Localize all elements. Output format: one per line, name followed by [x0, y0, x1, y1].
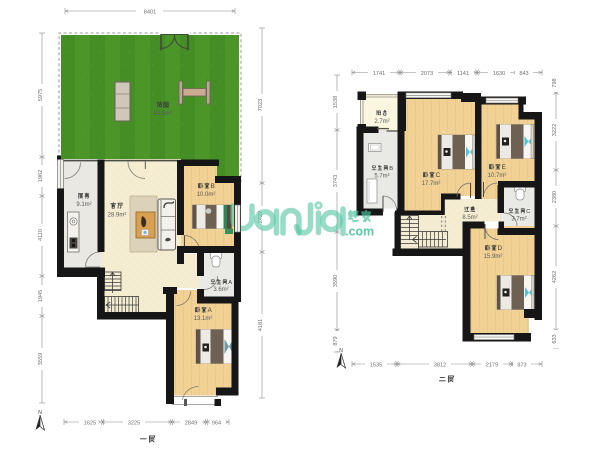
- svg-text:C: C: [526, 209, 530, 215]
- svg-text:3743: 3743: [333, 175, 339, 187]
- svg-text:9.1m²: 9.1m²: [76, 202, 91, 208]
- svg-text:28.9m²: 28.9m²: [108, 213, 127, 219]
- svg-text:2380: 2380: [552, 191, 558, 203]
- svg-text:2.7m²: 2.7m²: [374, 119, 389, 125]
- svg-text:3590: 3590: [333, 275, 339, 287]
- svg-text:3.7m²: 3.7m²: [511, 217, 526, 223]
- svg-text:879: 879: [333, 336, 339, 345]
- svg-text:8.5m²: 8.5m²: [462, 215, 477, 221]
- svg-text:E: E: [502, 164, 506, 171]
- svg-text:5.7m²: 5.7m²: [374, 174, 389, 180]
- svg-text:633: 633: [552, 334, 558, 343]
- svg-text:17.7m²: 17.7m²: [422, 181, 441, 187]
- svg-text:7023: 7023: [258, 99, 264, 111]
- svg-text:10.7m²: 10.7m²: [488, 173, 507, 179]
- svg-text:B: B: [389, 166, 393, 172]
- svg-text:13.1m²: 13.1m²: [194, 316, 213, 322]
- svg-text:4110: 4110: [38, 229, 44, 241]
- svg-text:C: C: [436, 172, 441, 179]
- svg-text:1741: 1741: [373, 71, 385, 77]
- svg-text:5975: 5975: [38, 89, 44, 101]
- svg-text:1630: 1630: [493, 71, 505, 77]
- svg-text:3.6m²: 3.6m²: [213, 287, 228, 293]
- svg-text:798: 798: [552, 78, 558, 87]
- svg-text:1535: 1535: [370, 362, 382, 368]
- svg-text:3222: 3222: [552, 124, 558, 136]
- svg-text:843: 843: [519, 71, 528, 77]
- svg-text:964: 964: [212, 420, 221, 426]
- svg-text:52.5m²: 52.5m²: [154, 111, 173, 117]
- svg-text:873: 873: [517, 362, 526, 368]
- svg-text:3225: 3225: [128, 420, 140, 426]
- svg-text:3812: 3812: [434, 362, 446, 368]
- svg-text:2849: 2849: [185, 420, 197, 426]
- svg-text:1538: 1538: [333, 96, 339, 108]
- svg-text:1625: 1625: [84, 420, 96, 426]
- svg-text:4181: 4181: [258, 319, 264, 331]
- svg-text:B: B: [211, 183, 215, 190]
- svg-text:1141: 1141: [457, 71, 469, 77]
- svg-text:D: D: [498, 245, 503, 252]
- svg-text:10.0m²: 10.0m²: [197, 192, 216, 198]
- svg-text:3559: 3559: [38, 353, 44, 365]
- svg-text:1945: 1945: [38, 290, 44, 302]
- svg-text:15.9m²: 15.9m²: [484, 254, 503, 260]
- svg-text:4262: 4262: [552, 271, 558, 283]
- svg-text:A: A: [228, 280, 232, 286]
- svg-text:.com: .com: [345, 225, 374, 239]
- svg-text:2179: 2179: [486, 362, 498, 368]
- svg-text:8401: 8401: [144, 10, 156, 16]
- svg-text:1962: 1962: [38, 170, 44, 182]
- svg-text:2073: 2073: [421, 71, 433, 77]
